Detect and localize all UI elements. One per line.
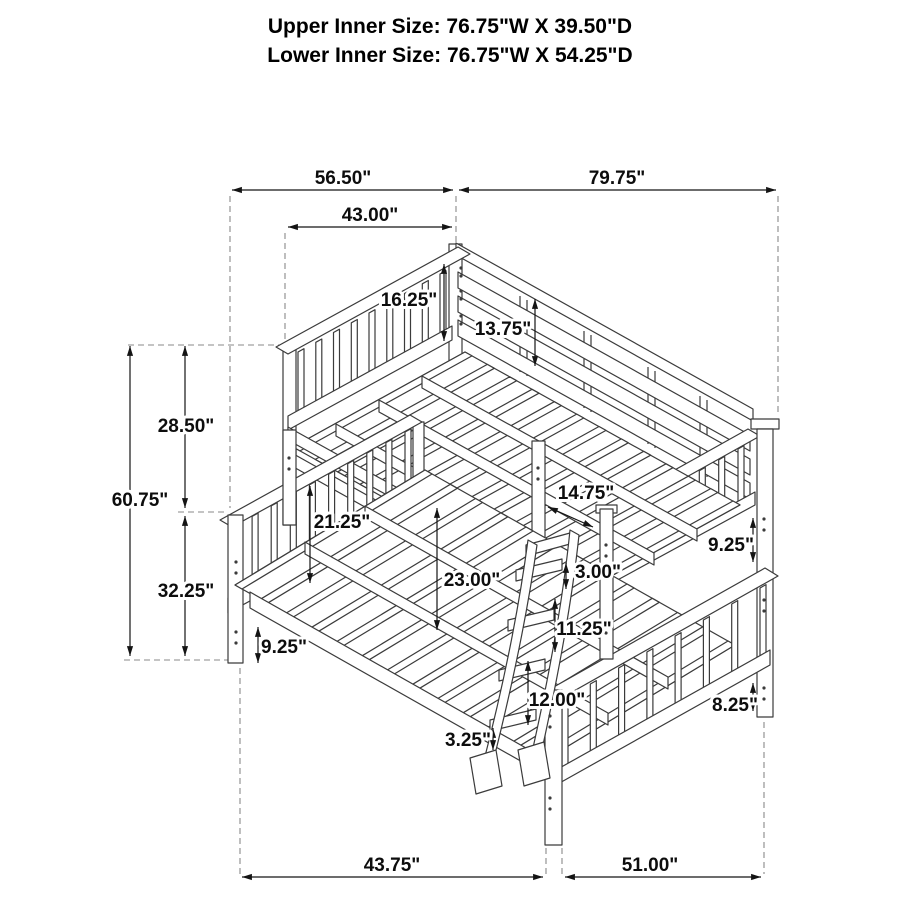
bunk-bed-dimension-diagram: Upper Inner Size: 76.75"W X 39.50"D Lowe…	[0, 0, 900, 900]
dim-bunk-clearance: 23.00"	[444, 570, 501, 591]
dim-ladder-foot-height: 3.25"	[445, 730, 491, 751]
dim-ladder-bottom-to-floor: 12.00"	[529, 690, 586, 711]
dim-upper-guardrail-height: 16.25"	[381, 290, 438, 311]
dim-ladder-rung-spacing: 11.25"	[556, 619, 612, 640]
dim-bottom-lower-width: 43.75"	[364, 855, 421, 876]
dim-ladder-top-gap: 3.00"	[575, 562, 621, 583]
dim-upper-rail-to-deck: 13.75"	[475, 319, 532, 340]
dim-left-rail-to-floor: 9.25"	[261, 637, 307, 658]
dim-lower-headboard-to-deck: 21.25"	[314, 512, 371, 533]
dim-top-overall-width: 56.50"	[315, 168, 372, 189]
dim-upper-section-height: 28.50"	[158, 416, 215, 437]
dim-right-rail-to-floor: 8.25"	[712, 695, 758, 716]
dim-right-guard-gap: 9.25"	[708, 535, 754, 556]
dim-lower-section-height: 32.25"	[158, 581, 215, 602]
dim-upper-headboard-width: 43.00"	[342, 205, 399, 226]
dim-bottom-lower-length: 51.00"	[622, 855, 679, 876]
dim-overall-height: 60.75"	[112, 490, 169, 511]
diagram-canvas: 56.50" 79.75" 43.00" 16.25" 13.75" 28.50…	[0, 0, 900, 900]
dim-top-overall-length: 79.75"	[589, 168, 646, 189]
dim-front-width-offset: 14.75"	[558, 483, 615, 504]
